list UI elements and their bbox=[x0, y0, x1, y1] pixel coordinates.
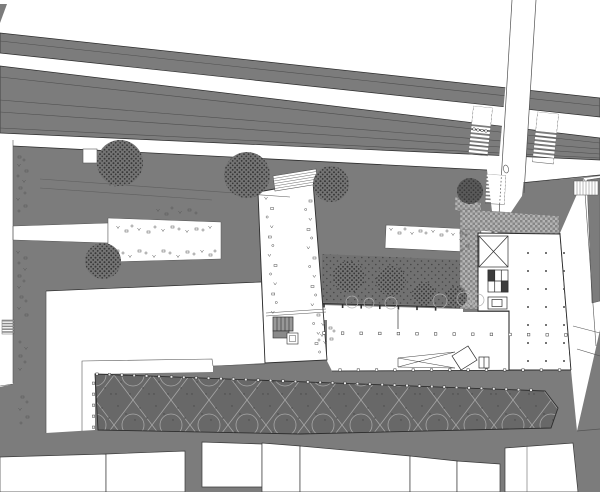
site-plan-canvas bbox=[0, 0, 600, 492]
canopy-column-tick bbox=[455, 386, 457, 388]
canopy-column-tick bbox=[418, 385, 420, 387]
column bbox=[563, 360, 565, 362]
canopy-column-tick bbox=[530, 389, 532, 391]
canopy-column-tick bbox=[108, 373, 110, 375]
column bbox=[527, 288, 529, 290]
tree-icon bbox=[97, 140, 143, 186]
canopy-column-tick bbox=[92, 382, 94, 384]
canopy-column-tick bbox=[294, 380, 296, 382]
column bbox=[449, 369, 451, 371]
tree-icon bbox=[445, 286, 467, 308]
canopy-column-tick bbox=[393, 384, 395, 386]
column bbox=[545, 288, 547, 290]
column bbox=[379, 332, 382, 335]
canopy-column-tick bbox=[517, 388, 519, 390]
canopy-column-tick bbox=[207, 377, 209, 379]
garden-wall-column bbox=[416, 306, 418, 310]
parcel bbox=[505, 443, 578, 492]
zebra-crossing bbox=[2, 320, 14, 334]
corner-sliver bbox=[0, 4, 7, 23]
column bbox=[485, 369, 487, 371]
column bbox=[527, 324, 529, 326]
canopy-column-tick bbox=[92, 415, 94, 417]
column bbox=[509, 333, 512, 336]
column bbox=[357, 369, 359, 371]
column bbox=[323, 332, 326, 335]
canopy-column-tick bbox=[245, 378, 247, 380]
tree-icon bbox=[412, 282, 436, 306]
column bbox=[339, 369, 341, 371]
column bbox=[545, 252, 547, 254]
canopy-column-tick bbox=[431, 385, 433, 387]
column bbox=[527, 252, 529, 254]
site-plan-drawing bbox=[0, 0, 600, 492]
column bbox=[545, 342, 547, 344]
column bbox=[397, 332, 400, 335]
canopy-column-tick bbox=[356, 383, 358, 385]
column bbox=[563, 288, 565, 290]
garden-wall-column bbox=[342, 304, 344, 308]
canopy-column-tick bbox=[480, 387, 482, 389]
canopy-column-tick bbox=[133, 374, 135, 376]
column bbox=[416, 332, 419, 335]
parcel bbox=[410, 456, 457, 492]
canopy-column-tick bbox=[183, 376, 185, 378]
canopy-column-tick bbox=[319, 381, 321, 383]
column bbox=[527, 342, 529, 344]
column bbox=[563, 342, 565, 344]
column bbox=[490, 333, 493, 336]
column bbox=[527, 360, 529, 362]
parcel bbox=[262, 443, 300, 492]
canopy-column-tick bbox=[269, 379, 271, 381]
column bbox=[430, 369, 432, 371]
column bbox=[504, 369, 506, 371]
tree-icon bbox=[224, 152, 270, 198]
column bbox=[563, 306, 565, 308]
service-room bbox=[488, 297, 507, 309]
tree-icon bbox=[457, 178, 483, 204]
terrace-surface bbox=[108, 218, 221, 262]
column bbox=[467, 369, 469, 371]
tree-icon bbox=[333, 261, 365, 293]
column bbox=[375, 369, 377, 371]
parcel bbox=[457, 461, 500, 492]
column bbox=[558, 369, 560, 371]
elevator-bank bbox=[488, 270, 508, 292]
column bbox=[545, 360, 547, 362]
column bbox=[563, 324, 565, 326]
canopy-column-tick bbox=[170, 376, 172, 378]
canopy-column-tick bbox=[381, 383, 383, 385]
canopy-column-tick bbox=[220, 377, 222, 379]
canopy-column-tick bbox=[96, 373, 98, 375]
canopy-column-tick bbox=[121, 374, 123, 376]
canopy-column-tick bbox=[369, 383, 371, 385]
canopy-column-tick bbox=[257, 379, 259, 381]
canopy-column-tick bbox=[344, 382, 346, 384]
garden-wall-column bbox=[435, 307, 437, 311]
canopy-column-tick bbox=[443, 386, 445, 388]
canopy-column-tick bbox=[331, 382, 333, 384]
column bbox=[360, 332, 363, 335]
canopy-column-tick bbox=[406, 384, 408, 386]
canopy-column-tick bbox=[92, 426, 94, 428]
canopy-column-tick bbox=[232, 378, 234, 380]
column bbox=[546, 333, 549, 336]
column bbox=[563, 252, 565, 254]
column bbox=[540, 369, 542, 371]
column bbox=[394, 369, 396, 371]
column bbox=[545, 270, 547, 272]
canopy-column-tick bbox=[92, 393, 94, 395]
column bbox=[522, 369, 524, 371]
canopy-column-tick bbox=[158, 375, 160, 377]
access-path bbox=[13, 223, 108, 243]
column bbox=[434, 333, 437, 336]
canopy-column-tick bbox=[307, 381, 309, 383]
garden-wall-column bbox=[323, 304, 325, 308]
canopy-column-tick bbox=[505, 388, 507, 390]
column bbox=[545, 306, 547, 308]
parcel bbox=[106, 451, 185, 492]
tree-icon bbox=[313, 166, 349, 202]
tree-icon bbox=[85, 243, 121, 279]
garden-wall-column bbox=[379, 305, 381, 309]
tree-icon bbox=[376, 266, 406, 296]
column bbox=[472, 333, 475, 336]
column bbox=[545, 324, 547, 326]
canopy-column-tick bbox=[493, 388, 495, 390]
column bbox=[412, 369, 414, 371]
canopy-column-tick bbox=[145, 375, 147, 377]
parcel bbox=[0, 454, 106, 492]
column bbox=[527, 270, 529, 272]
column bbox=[527, 306, 529, 308]
canopy-column-tick bbox=[92, 404, 94, 406]
plaza-notch bbox=[83, 149, 97, 163]
garden-wall-column bbox=[398, 306, 400, 310]
canopy-column-tick bbox=[468, 387, 470, 389]
column bbox=[453, 333, 456, 336]
column bbox=[341, 332, 344, 335]
column bbox=[563, 270, 565, 272]
hatched-stop-block bbox=[574, 181, 598, 195]
column bbox=[565, 334, 568, 337]
canopy-column-tick bbox=[282, 380, 284, 382]
parcel bbox=[202, 442, 262, 487]
garden-wall-column bbox=[360, 305, 362, 309]
column bbox=[527, 333, 530, 336]
canopy-column-tick bbox=[195, 377, 197, 379]
